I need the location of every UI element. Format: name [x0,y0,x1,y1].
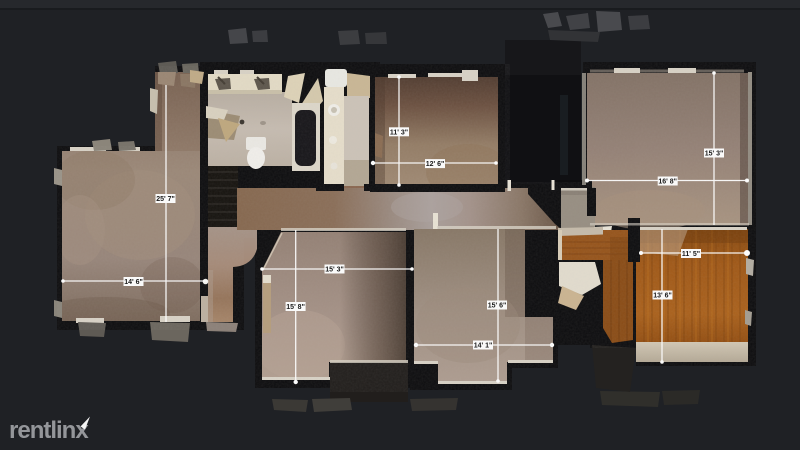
svg-text:rentlinx: rentlinx [9,417,89,444]
